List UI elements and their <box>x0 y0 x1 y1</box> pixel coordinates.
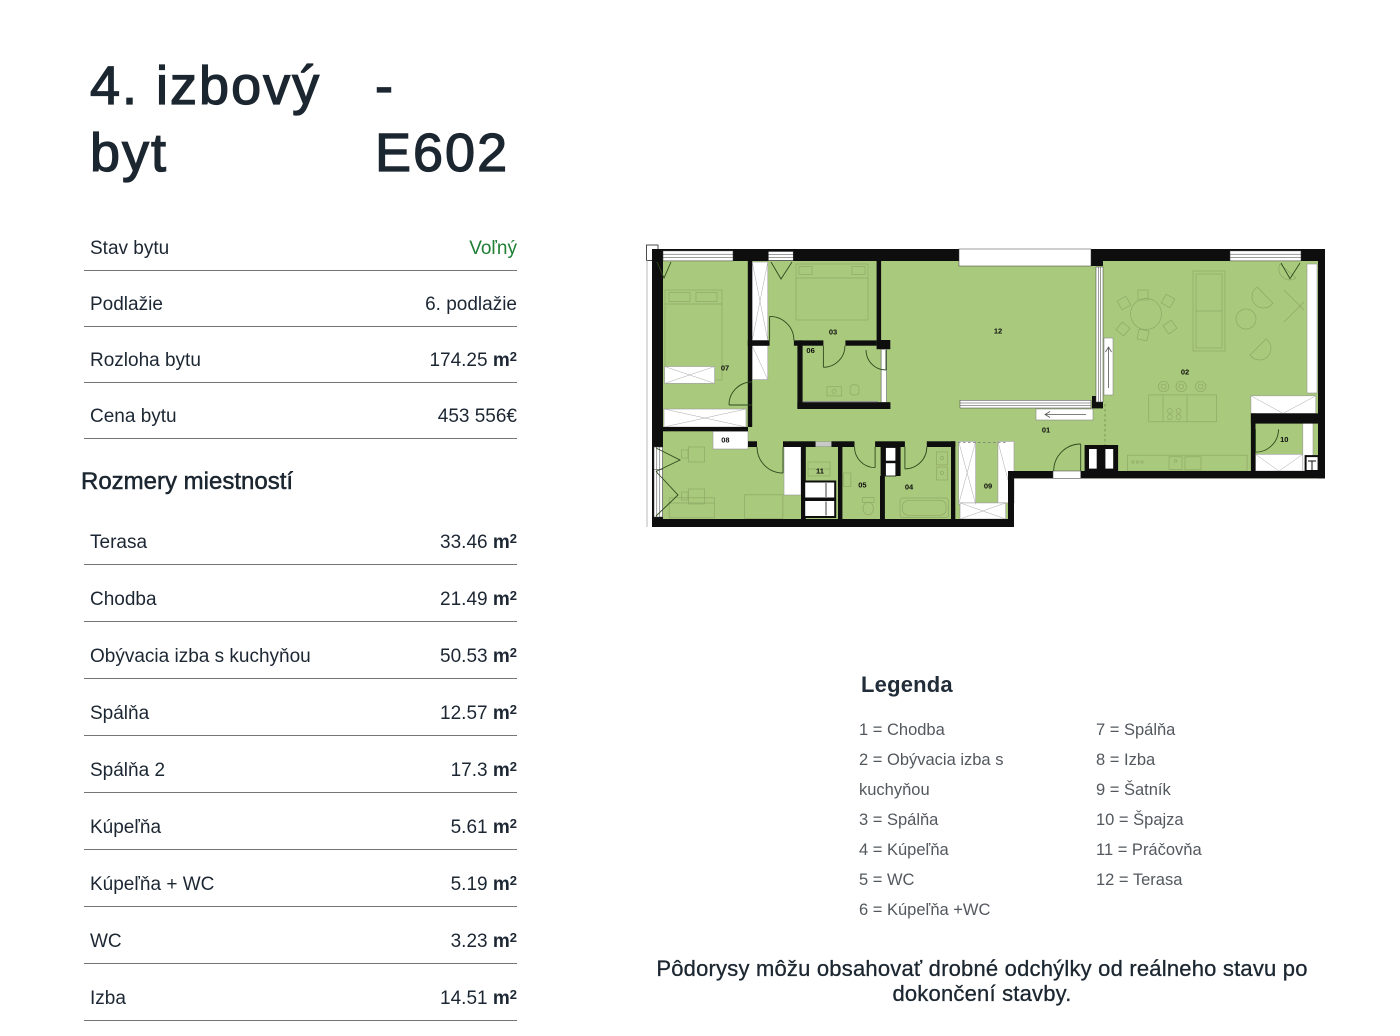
svg-text:07: 07 <box>721 364 729 373</box>
svg-text:03: 03 <box>829 328 837 337</box>
svg-text:02: 02 <box>1181 368 1189 377</box>
svg-text:11: 11 <box>816 467 824 476</box>
svg-text:05: 05 <box>858 481 866 490</box>
svg-text:12: 12 <box>994 327 1002 336</box>
svg-text:09: 09 <box>984 482 992 491</box>
svg-text:01: 01 <box>1042 426 1050 435</box>
svg-text:04: 04 <box>905 483 914 492</box>
svg-text:06: 06 <box>806 346 814 355</box>
svg-text:08: 08 <box>721 436 729 445</box>
svg-text:10: 10 <box>1280 435 1288 444</box>
